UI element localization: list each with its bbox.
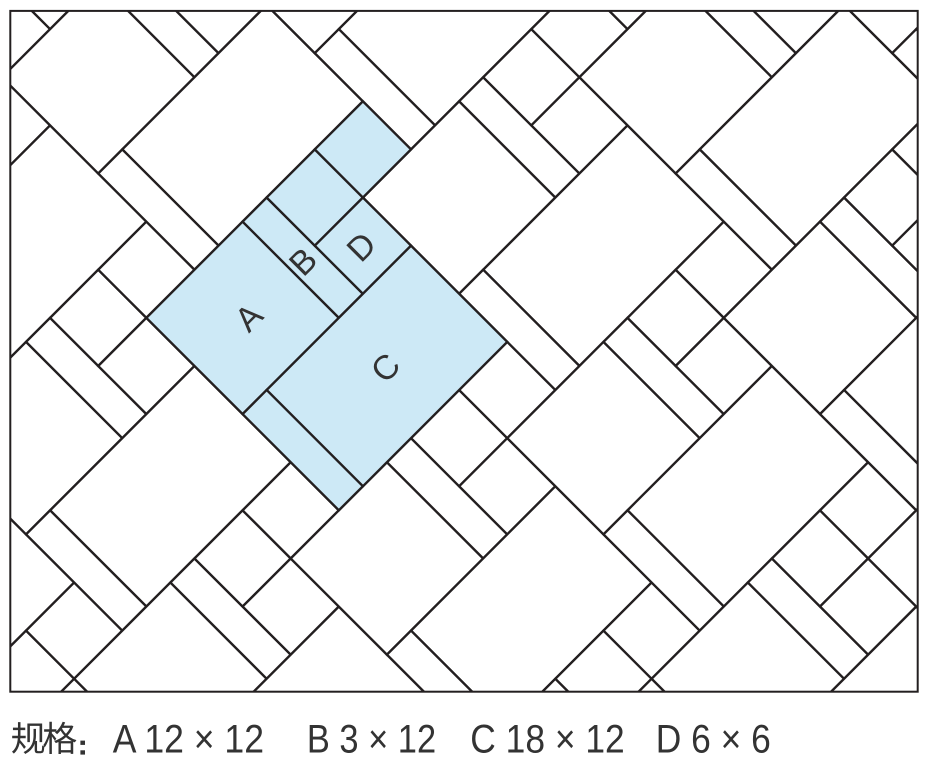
svg-text:B 3 × 12: B 3 × 12 [307, 718, 436, 759]
svg-text:A 12 × 12: A 12 × 12 [113, 718, 264, 759]
svg-text:C 18 × 12: C 18 × 12 [470, 718, 624, 759]
svg-text:D 6 × 6: D 6 × 6 [656, 718, 771, 759]
